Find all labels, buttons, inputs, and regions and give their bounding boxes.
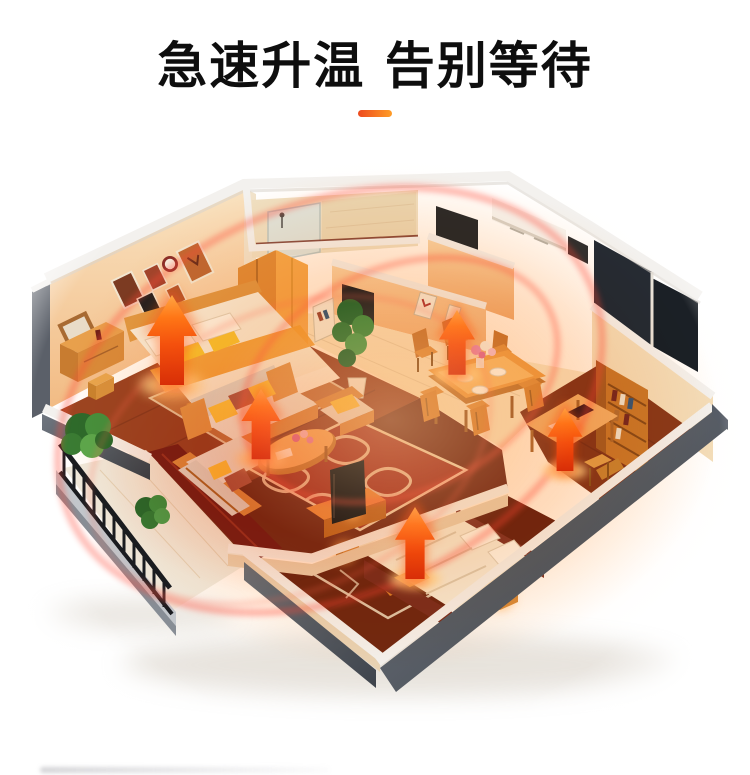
warm-overlay bbox=[0, 130, 750, 775]
apartment-illustration bbox=[0, 0, 750, 775]
bottom-cutoff-smudge bbox=[40, 767, 330, 773]
page: { "page": { "background_color": "#ffffff… bbox=[0, 0, 750, 775]
